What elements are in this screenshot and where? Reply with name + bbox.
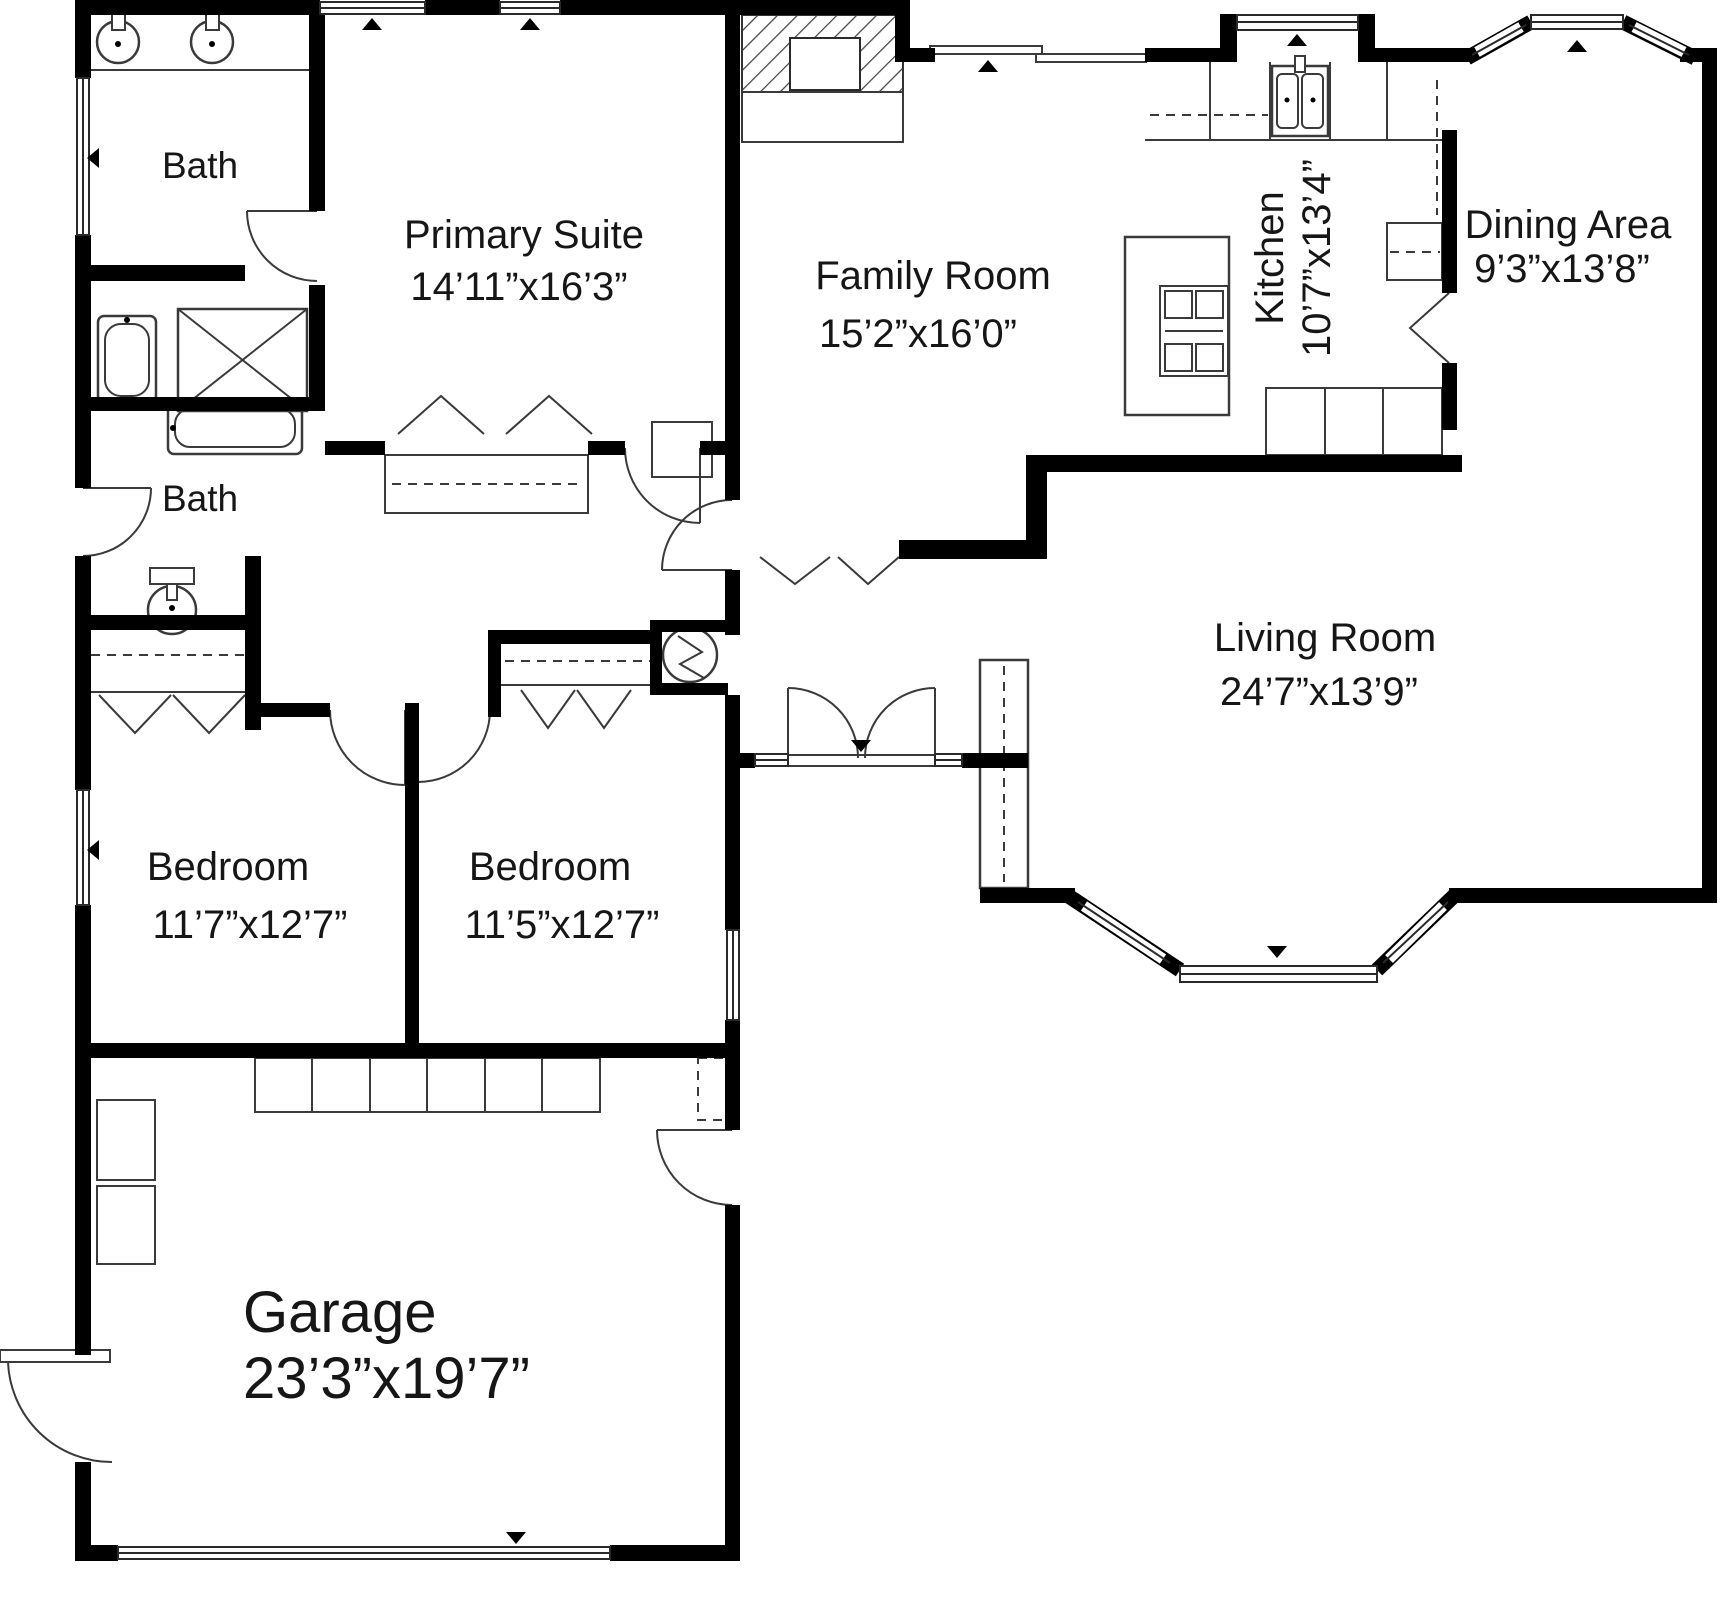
room-label-bedroom-right: Bedroom <box>469 845 631 889</box>
water-heater-icon <box>663 628 717 682</box>
window-icon <box>77 790 89 905</box>
floor-plan-page: Bath Primary Suite 14’11”x16’3” Family R… <box>0 0 1722 1608</box>
room-label-primary-suite: Primary Suite <box>404 213 644 257</box>
room-label-dining-area: Dining Area <box>1465 203 1673 247</box>
room-label-bath-mid: Bath <box>162 478 238 519</box>
window-icon <box>77 78 89 235</box>
garage-side-door-icon <box>0 1350 112 1462</box>
room-dims-kitchen: 10’7”x13’4” <box>1295 159 1339 357</box>
room-label-kitchen: Kitchen <box>1248 191 1292 324</box>
dining-opening <box>1410 293 1449 363</box>
floor-plan-drawing: Bath Primary Suite 14’11”x16’3” Family R… <box>0 0 1722 1608</box>
bathtub-icon <box>98 316 156 402</box>
room-label-garage: Garage <box>243 1280 436 1345</box>
entry-closet <box>980 660 1028 888</box>
cased-opening <box>760 557 899 584</box>
room-dims-primary-suite: 14’11”x16’3” <box>410 265 627 309</box>
room-dims-family-room: 15’2”x16’0” <box>819 312 1017 356</box>
room-dims-living-room: 24’7”x13’9” <box>1220 670 1418 714</box>
closet-right <box>499 661 659 728</box>
room-label-bath-top: Bath <box>162 145 238 186</box>
window-icon <box>1237 15 1358 30</box>
base-cabinets <box>1266 388 1442 455</box>
cooktop-island-icon <box>1125 237 1229 415</box>
window-icon <box>755 754 788 766</box>
window-icon <box>320 2 425 14</box>
room-dims-bedroom-right: 11’5”x12’7” <box>465 903 660 947</box>
window-icon <box>500 2 560 14</box>
room-dims-dining-area: 9’3”x13’8” <box>1474 247 1650 291</box>
room-label-living-room: Living Room <box>1214 616 1436 660</box>
shower-icon <box>178 309 307 411</box>
closet-left <box>91 655 261 733</box>
primary-closet <box>385 396 592 513</box>
sliding-door-icon <box>930 46 1146 62</box>
room-label-bedroom-left: Bedroom <box>147 845 309 889</box>
room-dims-bedroom-left: 11’7”x12’7” <box>153 903 348 947</box>
room-label-family-room: Family Room <box>815 254 1051 298</box>
window-icon <box>935 754 962 766</box>
window-icon <box>727 930 739 1020</box>
room-dims-garage: 23’3”x19’7” <box>243 1346 530 1411</box>
kitchen-counter <box>1145 62 1442 280</box>
kitchen-sink-icon <box>1272 56 1328 136</box>
double-vanity-icon <box>91 14 309 70</box>
garage-door-icon <box>118 1547 610 1559</box>
room-labels: Bath Primary Suite 14’11”x16’3” Family R… <box>147 145 1672 1411</box>
fireplace-icon <box>742 15 903 142</box>
bay-window-icon <box>1078 902 1448 982</box>
garage-cabinets-icon <box>97 1058 727 1264</box>
